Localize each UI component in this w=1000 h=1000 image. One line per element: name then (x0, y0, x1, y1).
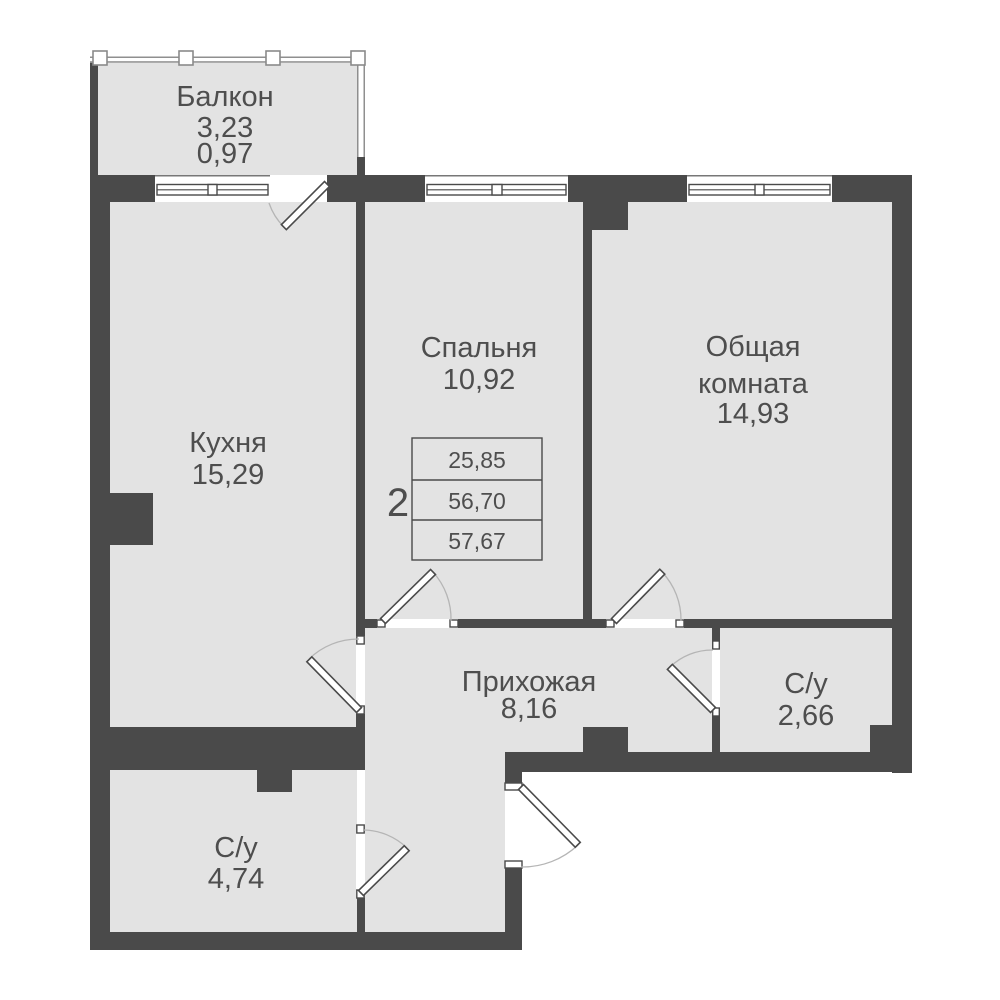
floor-plan-page: 2 25,85 56,70 57,67 Балкон 3,23 0,97 Кух… (0, 0, 1000, 1000)
windows (155, 175, 832, 202)
balcony-rail-right-line2 (364, 62, 366, 157)
bedroom-area-label: 10,92 (443, 364, 516, 396)
bedroom-floor (365, 202, 583, 620)
hallway-area-label: 8,16 (501, 693, 557, 725)
balcony-rail-right-line1 (357, 62, 359, 157)
kitchen-area-label: 15,29 (192, 459, 265, 491)
living-window-mullion (755, 185, 764, 196)
kitchen-pier (110, 493, 153, 545)
bedroom-living-wall (583, 202, 592, 628)
right-outer-wall (892, 202, 912, 773)
bedroom-door-sill-right (450, 620, 458, 627)
entrance-door-leaf (519, 785, 581, 848)
bedroom-name-label: Спальня (421, 332, 538, 364)
living-room-name-label-line1: Общая (706, 331, 801, 363)
balcony-post-2 (179, 51, 193, 65)
bathroom-large-door-sill-top (357, 825, 364, 833)
balcony-rail-top-line1 (90, 57, 365, 59)
bathroom-large-area-label: 4,74 (208, 863, 264, 895)
bathroom-small-duct (870, 725, 892, 752)
kitchen-door-sill-top (357, 636, 364, 644)
left-outer-wall (90, 175, 110, 950)
bathroom-small-area-label: 2,66 (778, 700, 834, 732)
bedroom-window-mullion (492, 185, 502, 196)
balcony-right-wall-stub (357, 157, 365, 175)
balcony-post-1 (93, 51, 107, 65)
info-table-row-living-area: 25,85 (448, 447, 506, 473)
living-room-name-label-line2: комната (698, 368, 809, 400)
bathroom-large-duct (257, 770, 292, 792)
info-table-rooms-count: 2 (387, 481, 409, 525)
balcony-area-reduced-label: 0,97 (197, 138, 253, 170)
bathroom-small-name-label: С/у (784, 668, 828, 700)
bottom-left-outer-wall (90, 932, 522, 950)
entrance-door-opening (505, 783, 522, 868)
entrance-door-sill-bottom (505, 861, 522, 868)
bathroom-large-name-label: С/у (214, 832, 258, 864)
living-room-corner-pier (592, 202, 628, 230)
living-room-area-label: 14,93 (717, 398, 790, 430)
kitchen-window-mullion (208, 185, 217, 196)
kitchen-name-label: Кухня (189, 427, 267, 459)
floor-plan-drawing: 2 25,85 56,70 57,67 Балкон 3,23 0,97 Кух… (0, 0, 1000, 1000)
balcony-name-label: Балкон (176, 81, 273, 113)
living-door-sill-left (606, 620, 614, 627)
hallway-pier (583, 727, 628, 752)
balcony-post-4 (351, 51, 365, 65)
entrance-door-arc (521, 845, 578, 867)
bathroom-small-door-sill-top (713, 641, 720, 649)
living-door-sill-right (676, 620, 684, 627)
info-table-row-total-area: 57,67 (448, 528, 506, 554)
info-table-row-apartment-area: 56,70 (448, 488, 506, 514)
bottom-right-outer-wall (505, 752, 912, 772)
balcony-post-3 (266, 51, 280, 65)
kitchen-bathroom-wall (90, 727, 365, 770)
balcony-rail-top-line2 (90, 61, 365, 63)
balcony-left-wall (90, 59, 98, 175)
